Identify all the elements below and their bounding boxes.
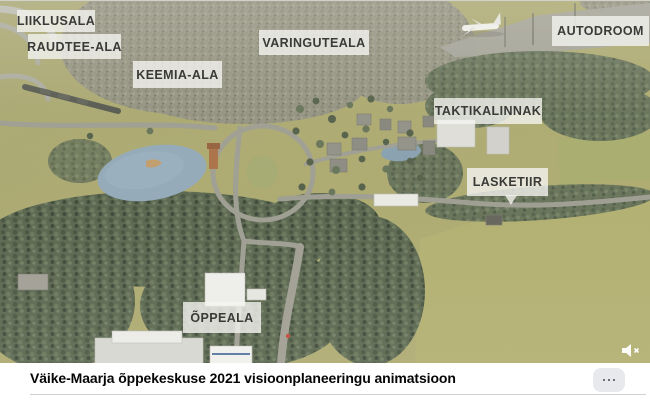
post-footer: Väike-Maarja õppekeskuse 2021 visioonpla… [0, 363, 650, 400]
more-options-icon [603, 379, 606, 382]
area-label-taktikalinnak: TAKTIKALINNAK [434, 98, 542, 124]
lasketiir-label-pointer [505, 195, 517, 205]
area-label-raudtee-ala: RAUDTEE-ALA [28, 34, 121, 59]
video-player[interactable]: LIIKLUSALA RAUDTEE-ALA KEEMIA-ALA VARING… [0, 0, 650, 364]
footer-divider [30, 394, 646, 395]
video-title[interactable]: Väike-Maarja õppekeskuse 2021 visioonpla… [30, 370, 456, 386]
area-label-autodroom: AUTODROOM [552, 16, 649, 46]
area-label-lasketiir: LASKETIIR [467, 168, 548, 196]
area-label-varinguteala: VARINGUTEALA [259, 30, 369, 55]
mute-icon[interactable] [621, 342, 643, 359]
area-label-keemia-ala: KEEMIA-ALA [133, 61, 222, 88]
more-options-button[interactable] [593, 368, 625, 392]
area-label-liiklusala: LIIKLUSALA [17, 10, 95, 32]
area-label-oppeala: ÕPPEALA [183, 302, 261, 333]
